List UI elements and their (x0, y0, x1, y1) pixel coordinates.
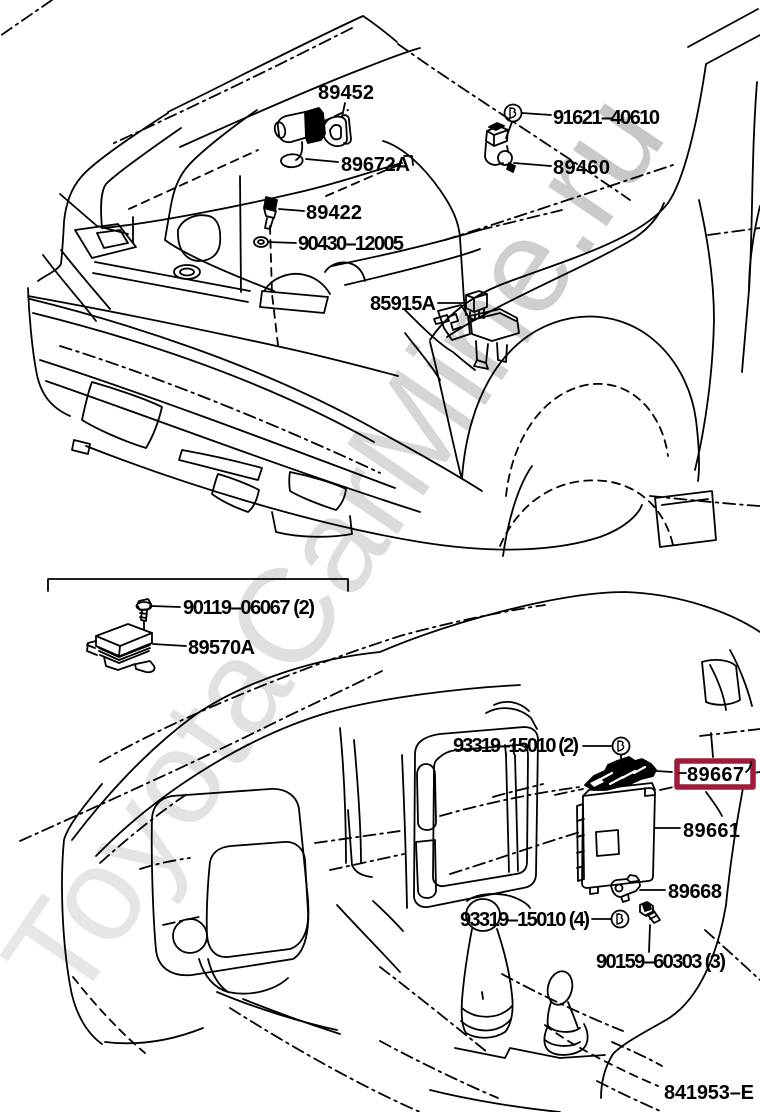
svg-text:89570A: 89570A (188, 637, 255, 659)
svg-text:90119–06067 (2): 90119–06067 (2) (183, 597, 315, 619)
svg-text:89452: 89452 (318, 82, 374, 104)
svg-text:89661: 89661 (683, 820, 740, 842)
svg-text:89672A: 89672A (341, 154, 410, 176)
svg-text:89422: 89422 (306, 202, 362, 224)
svg-text:90430–12005: 90430–12005 (298, 233, 404, 255)
svg-text:89460: 89460 (553, 157, 610, 179)
svg-text:89667: 89667 (687, 764, 744, 786)
svg-text:85915A: 85915A (370, 293, 436, 315)
svg-text:93319–15010 (2): 93319–15010 (2) (453, 735, 579, 757)
svg-text:89668: 89668 (668, 881, 722, 903)
svg-text:841953–E: 841953–E (664, 1082, 754, 1104)
svg-text:93319–15010 (4): 93319–15010 (4) (460, 909, 590, 931)
svg-text:90159–60303 (3): 90159–60303 (3) (596, 951, 726, 973)
svg-text:91621–40610: 91621–40610 (553, 107, 660, 129)
